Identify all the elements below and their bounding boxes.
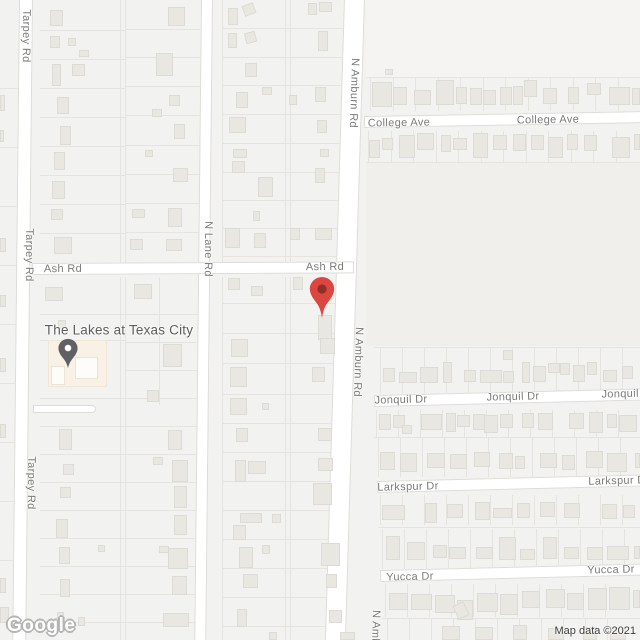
street-label: N Amburn Rd [368, 610, 382, 640]
street-label: Jonquil Dr [486, 390, 539, 403]
street-label: N Lane Rd [202, 221, 214, 277]
street-label: Tarpey Rd [25, 456, 37, 509]
street-label: N Amburn Rd [351, 327, 365, 397]
map-attribution: Map data ©2021 [555, 625, 637, 637]
street-label: Larkspur Dr [588, 474, 640, 487]
google-logo[interactable]: Google [7, 615, 75, 637]
street-label: Ash Rd [44, 263, 82, 275]
street-label: Jonquil Dr [601, 387, 640, 400]
street-labels-layer: Tarpey RdTarpey RdTarpey RdN Lane RdN La… [0, 0, 640, 640]
street-label: N Amburn Rd [347, 58, 361, 128]
street-label: Yucca Dr [587, 563, 635, 576]
map-canvas[interactable]: Tarpey RdTarpey RdTarpey RdN Lane RdN La… [0, 0, 640, 640]
poi-label[interactable]: The Lakes at Texas City [45, 323, 193, 338]
street-label: College Ave [517, 113, 580, 126]
poi-pin-icon[interactable] [57, 338, 79, 369]
street-label: Jonquil Dr [374, 393, 427, 406]
red-map-marker-icon[interactable] [308, 276, 336, 320]
street-label: Larkspur Dr [377, 480, 439, 493]
street-label: Ash Rd [306, 261, 344, 273]
street-label: Tarpey Rd [23, 228, 35, 281]
street-label: Tarpey Rd [20, 9, 32, 62]
street-label: College Ave [368, 116, 431, 129]
street-label: Yucca Dr [386, 570, 434, 583]
